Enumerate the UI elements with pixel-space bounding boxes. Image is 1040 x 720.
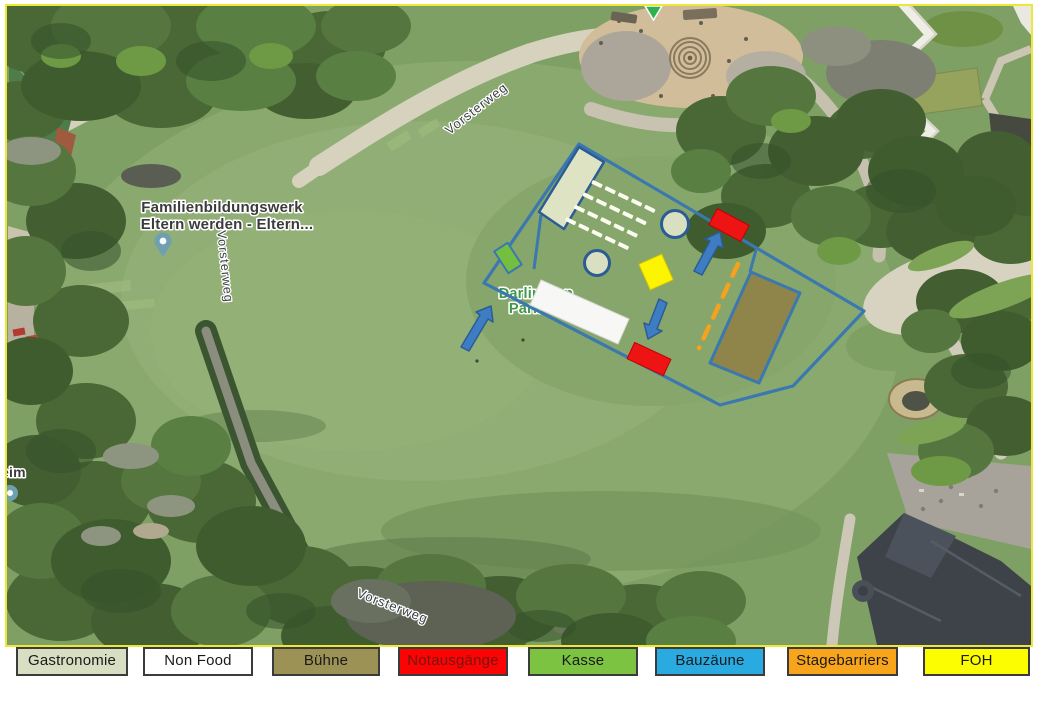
poi-label-partial: eim bbox=[7, 464, 26, 480]
legend-label: Notausgänge bbox=[407, 649, 498, 673]
legend-label: Gastronomie bbox=[28, 649, 116, 673]
legend-label: Stagebarriers bbox=[796, 649, 889, 673]
legend-label: Non Food bbox=[164, 649, 231, 673]
legend-item-stagebarriers[interactable]: Stagebarriers bbox=[787, 647, 898, 676]
page: Familienbildungswerk Eltern werden - Elt… bbox=[0, 0, 1040, 720]
legend-item-bauzaeune[interactable]: Bauzäune bbox=[655, 647, 765, 676]
legend-item-buehne[interactable]: Bühne bbox=[272, 647, 380, 676]
satellite-map-image: Familienbildungswerk Eltern werden - Elt… bbox=[5, 4, 1033, 647]
legend-label: FOH bbox=[960, 649, 992, 673]
legend-item-kasse[interactable]: Kasse bbox=[528, 647, 638, 676]
legend-label: Bühne bbox=[304, 649, 348, 673]
legend-item-gastronomie[interactable]: Gastronomie bbox=[16, 647, 128, 676]
legend: Gastronomie Non Food Bühne Notausgänge K… bbox=[0, 647, 1040, 681]
legend-label: Kasse bbox=[562, 649, 605, 673]
legend-label: Bauzäune bbox=[675, 649, 744, 673]
legend-item-notausgaenge[interactable]: Notausgänge bbox=[398, 647, 508, 676]
round-stand-2[interactable] bbox=[585, 251, 610, 276]
poi-label-line1: Familienbildungswerk bbox=[141, 199, 303, 216]
round-stand-1[interactable] bbox=[662, 211, 689, 238]
legend-item-foh[interactable]: FOH bbox=[923, 647, 1030, 676]
legend-item-non-food[interactable]: Non Food bbox=[143, 647, 253, 676]
